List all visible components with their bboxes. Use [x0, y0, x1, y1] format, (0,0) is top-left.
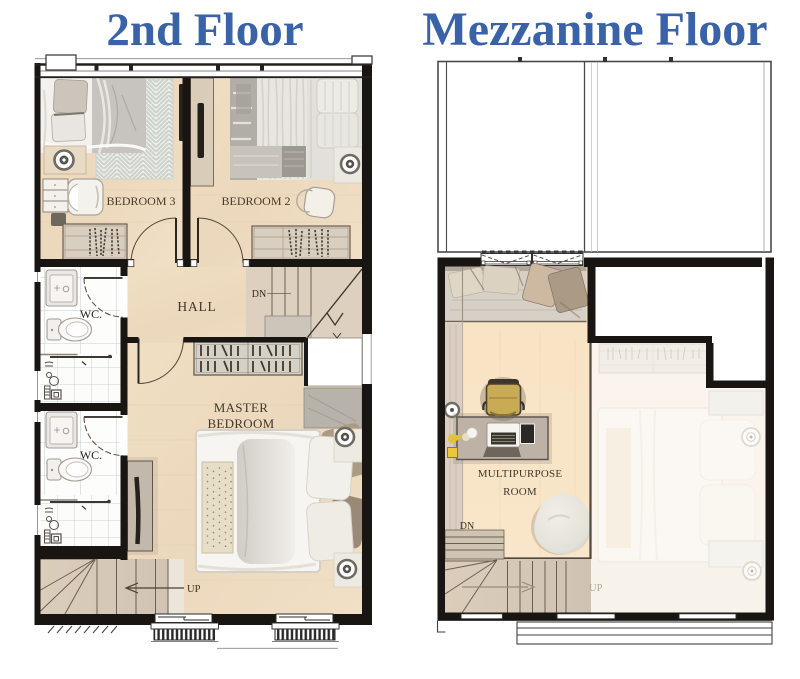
svg-text:WC.: WC.: [80, 448, 102, 462]
svg-text:BEDROOM: BEDROOM: [207, 416, 274, 431]
svg-text:BEDROOM 3: BEDROOM 3: [106, 194, 175, 208]
svg-text:MULTIPURPOSE: MULTIPURPOSE: [478, 468, 563, 480]
svg-text:ROOM: ROOM: [503, 486, 537, 498]
svg-text:UP: UP: [187, 584, 201, 595]
svg-text:UP: UP: [589, 583, 603, 594]
svg-text:BEDROOM 2: BEDROOM 2: [221, 194, 290, 208]
svg-text:2nd Floor: 2nd Floor: [106, 4, 303, 56]
svg-text:DN: DN: [252, 289, 266, 300]
svg-text:MASTER: MASTER: [214, 400, 269, 415]
svg-text:HALL: HALL: [177, 299, 216, 314]
svg-text:Mezzanine Floor: Mezzanine Floor: [422, 3, 767, 56]
